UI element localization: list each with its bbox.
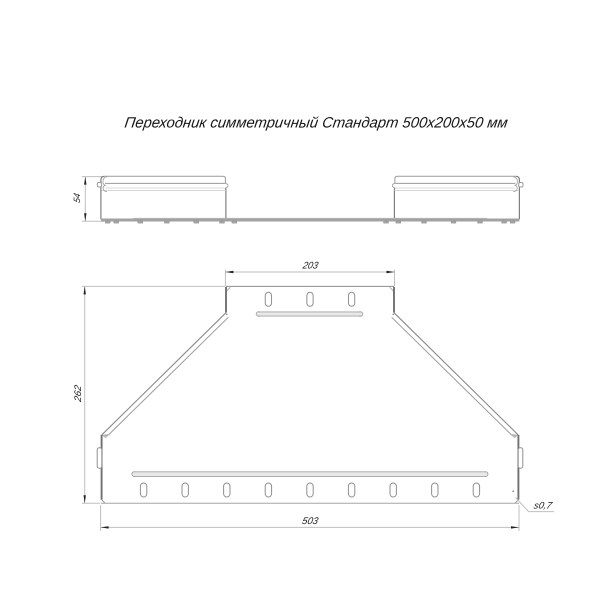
svg-text:54: 54 — [72, 192, 82, 204]
svg-text:503: 503 — [301, 516, 320, 527]
svg-text:Переходник симметричный Станда: Переходник симметричный Стандарт 500х200… — [123, 114, 509, 131]
svg-text:203: 203 — [301, 261, 320, 272]
svg-text:s0,7: s0,7 — [533, 501, 554, 512]
svg-text:262: 262 — [73, 384, 84, 404]
